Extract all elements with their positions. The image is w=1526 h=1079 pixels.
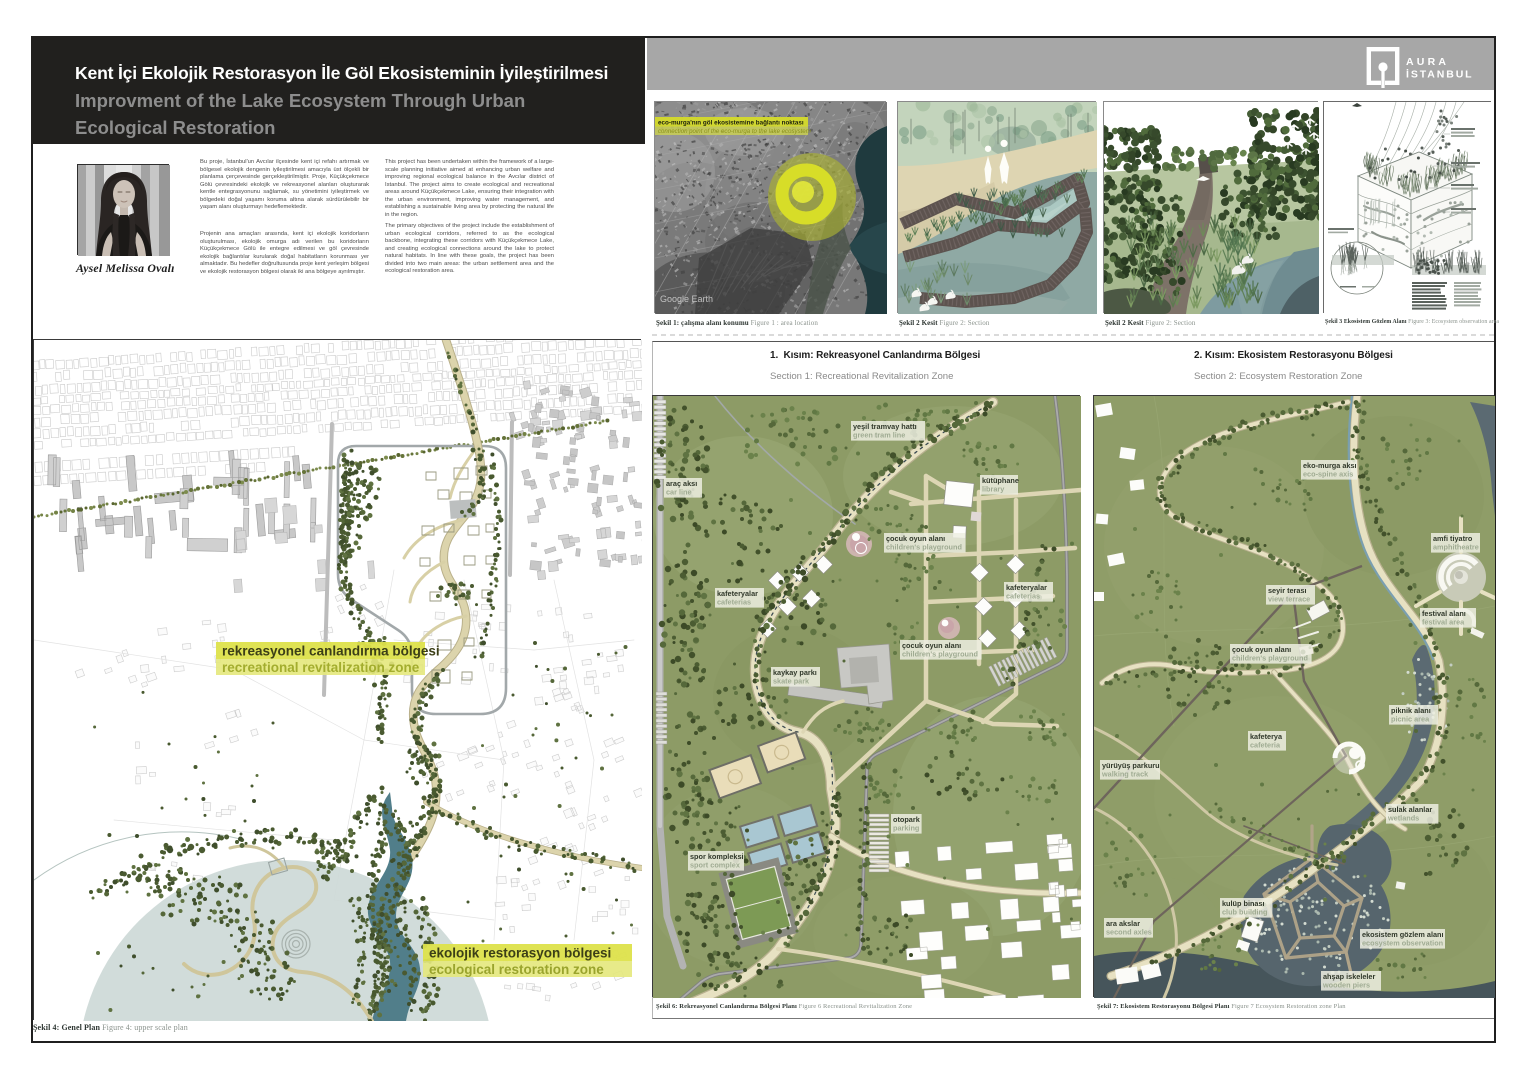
svg-text:parking: parking — [893, 824, 919, 833]
svg-text:ecosystem observation: ecosystem observation — [1362, 939, 1443, 948]
svg-text:Google Earth: Google Earth — [660, 294, 713, 304]
svg-text:eco-murga'nın göl ekosistemine: eco-murga'nın göl ekosistemine bağlantı … — [658, 120, 804, 127]
svg-text:library: library — [982, 485, 1005, 494]
svg-text:İSTANBUL: İSTANBUL — [1406, 68, 1474, 81]
svg-text:cafeteria: cafeteria — [1250, 741, 1281, 750]
svg-text:view terrace: view terrace — [1268, 595, 1310, 604]
svg-text:car line: car line — [666, 488, 692, 497]
svg-text:ecological restoration zone: ecological restoration zone — [429, 962, 604, 977]
svg-text:second axles: second axles — [1106, 928, 1152, 937]
svg-text:connection point of the eco-mu: connection point of the eco-murga to the… — [658, 128, 811, 135]
svg-text:AURA: AURA — [1406, 56, 1449, 68]
svg-text:green tram line: green tram line — [853, 431, 905, 440]
svg-text:children's playground: children's playground — [902, 650, 978, 659]
svg-text:rekreasyonel canlandırma bölge: rekreasyonel canlandırma bölgesi — [222, 644, 440, 659]
svg-text:skate park: skate park — [773, 677, 810, 686]
svg-text:festival area: festival area — [1422, 618, 1465, 627]
svg-text:wetlands: wetlands — [1387, 814, 1419, 823]
svg-text:club building: club building — [1222, 908, 1267, 917]
svg-text:recreational revitalization zo: recreational revitalization zone — [222, 660, 420, 675]
svg-text:amphitheatre: amphitheatre — [1433, 543, 1479, 552]
svg-text:children's playground: children's playground — [1232, 654, 1308, 663]
svg-text:children's playground: children's playground — [886, 543, 962, 552]
svg-text:wooden piers: wooden piers — [1322, 981, 1370, 990]
svg-text:sport complex: sport complex — [690, 861, 740, 870]
svg-text:picnic area: picnic area — [1391, 715, 1430, 724]
svg-text:cafeterias: cafeterias — [1006, 592, 1040, 601]
svg-text:cafeterias: cafeterias — [717, 598, 751, 607]
svg-text:walking track: walking track — [1101, 770, 1149, 779]
svg-text:ekolojik restorasyon bölgesi: ekolojik restorasyon bölgesi — [429, 946, 611, 961]
svg-text:eco-spine axis: eco-spine axis — [1303, 470, 1353, 479]
